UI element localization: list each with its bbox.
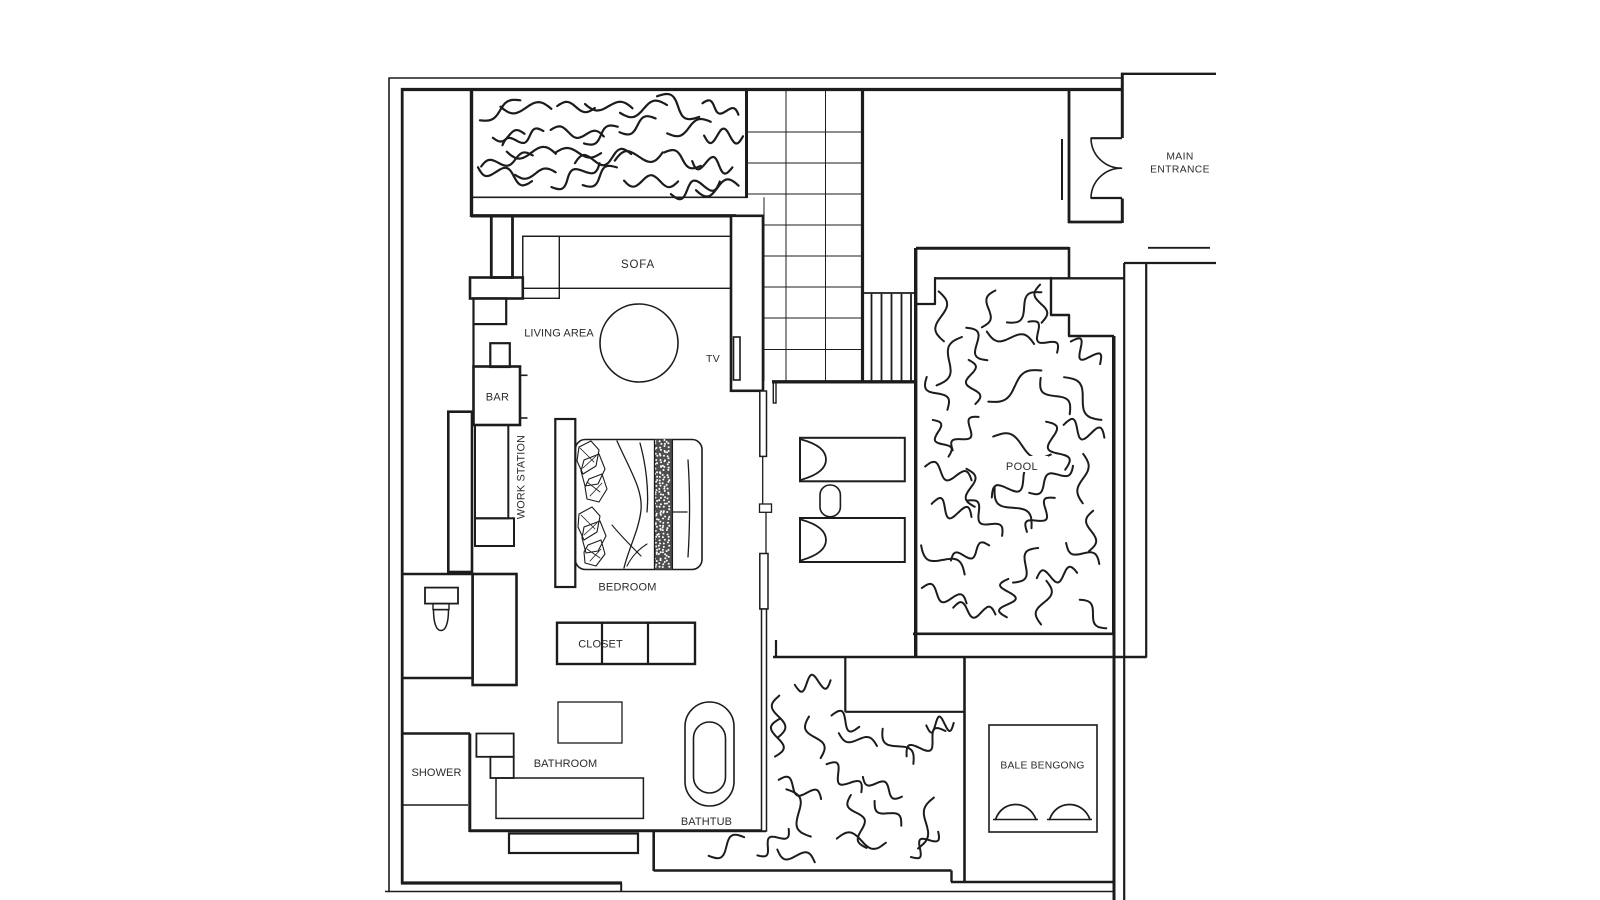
svg-text:WORK STATION: WORK STATION [516, 435, 528, 519]
svg-text:CLOSET: CLOSET [578, 639, 623, 651]
svg-text:TV: TV [706, 353, 720, 365]
svg-text:BALE BENGONG: BALE BENGONG [1000, 761, 1084, 772]
svg-text:BAR: BAR [486, 392, 510, 404]
svg-text:LIVING AREA: LIVING AREA [524, 328, 594, 340]
svg-text:SOFA: SOFA [621, 259, 655, 271]
svg-text:BATHROOM: BATHROOM [534, 758, 598, 770]
svg-text:SHOWER: SHOWER [411, 767, 461, 779]
svg-text:BEDROOM: BEDROOM [598, 582, 656, 594]
svg-text:BATHTUB: BATHTUB [681, 816, 732, 828]
svg-text:ENTRANCE: ENTRANCE [1150, 165, 1210, 176]
svg-text:POOL: POOL [1006, 461, 1038, 473]
svg-text:MAIN: MAIN [1166, 152, 1193, 163]
